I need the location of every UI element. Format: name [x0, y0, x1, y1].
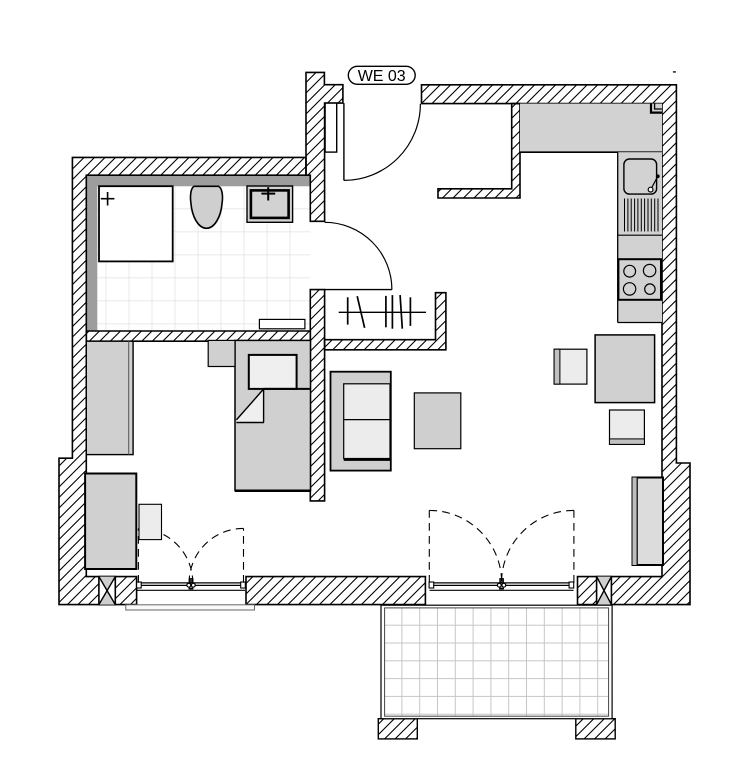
- svg-text:WE 03: WE 03: [358, 68, 406, 85]
